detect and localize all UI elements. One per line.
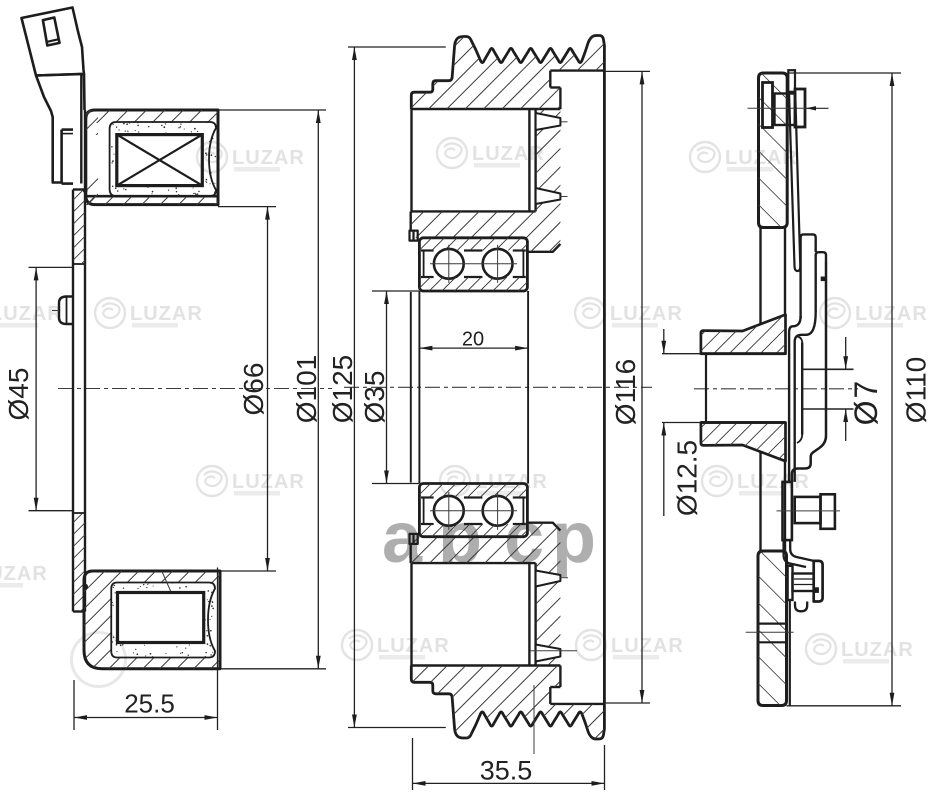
svg-text:Ø101: Ø101 — [291, 355, 322, 424]
svg-text:Ø66: Ø66 — [238, 363, 269, 416]
svg-text:Ø45: Ø45 — [3, 368, 34, 421]
svg-text:20: 20 — [462, 329, 484, 351]
svg-text:Ø12.5: Ø12.5 — [672, 440, 703, 516]
svg-text:Ø110: Ø110 — [901, 357, 932, 423]
svg-text:25.5: 25.5 — [124, 689, 175, 719]
svg-text:Ø7: Ø7 — [848, 379, 884, 426]
svg-text:Ø125: Ø125 — [327, 355, 358, 424]
svg-text:Ø116: Ø116 — [610, 359, 641, 425]
svg-text:p: p — [552, 498, 596, 578]
svg-text:Ø35: Ø35 — [359, 371, 390, 424]
svg-text:35.5: 35.5 — [480, 756, 533, 786]
